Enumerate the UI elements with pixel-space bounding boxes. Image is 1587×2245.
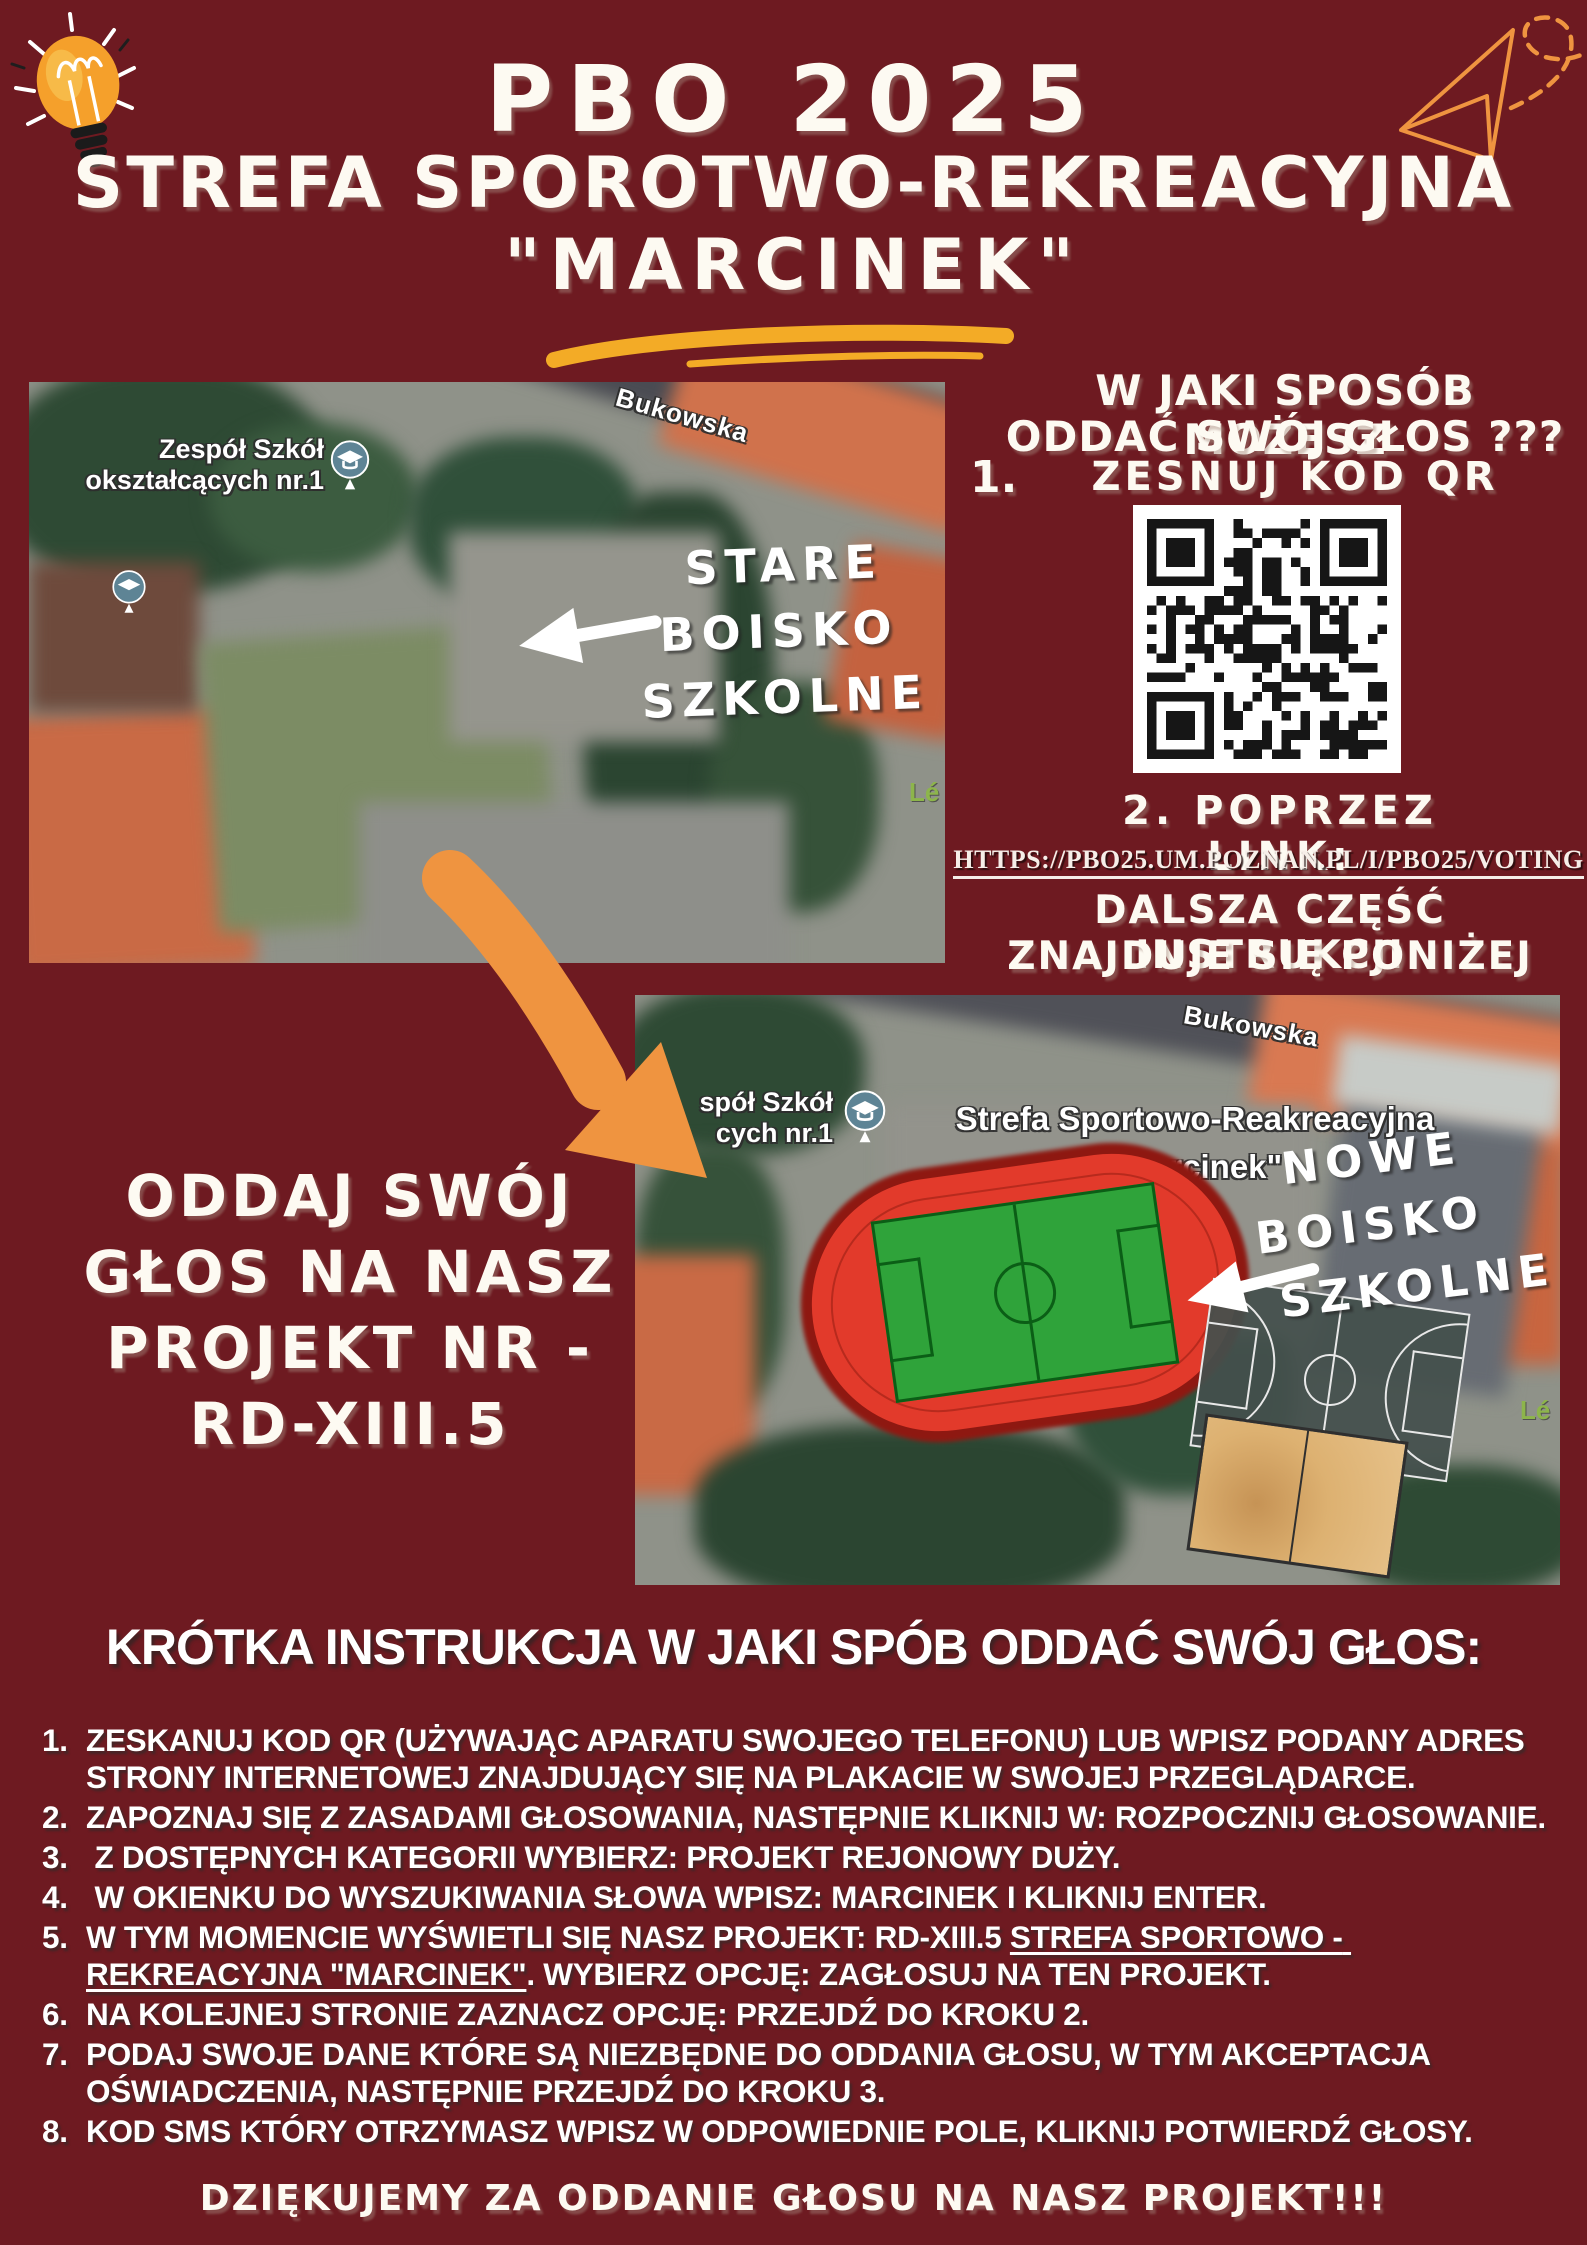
school-pin-icon: [329, 440, 371, 492]
instructions-heading: KRÓTKA INSTRUKCJA W JAKI SPÓB ODDAĆ SWÓJ…: [0, 1618, 1587, 1676]
satellite-map-old: Bukowska Zespół Szkół okształcących nr.1…: [29, 382, 945, 963]
step1-label: ZESNUJ KOD QR: [1090, 454, 1500, 500]
note-line2: ZNAJDUJE SIĘ PONIŻEJ: [980, 934, 1560, 979]
instruction-item: 4. W OKIENKU DO WYSZUKIWANIA SŁOWA WPISZ…: [42, 1879, 1574, 1916]
instruction-item: 3. Z DOSTĘPNYCH KATEGORII WYBIERZ: PROJE…: [42, 1839, 1574, 1876]
step1-number: 1.: [970, 452, 1017, 503]
instruction-item: 8.KOD SMS KTÓRY OTRZYMASZ WPISZ W ODPOWI…: [42, 2113, 1574, 2150]
underline-swoosh: [540, 318, 1020, 378]
instruction-item: 6.NA KOLEJNEJ STRONIE ZAZNACZ OPCJĘ: PRZ…: [42, 1996, 1574, 2033]
instruction-item: 7.PODAJ SWOJE DANE KTÓRE SĄ NIEZBĘDNE DO…: [42, 2036, 1574, 2110]
satellite-map-new: Bukowska spół Szkół cych nr.1 Strefa Spo…: [635, 995, 1560, 1585]
instruction-item: 1.ZESKANUJ KOD QR (UŻYWAJĄC APARATU SWOJ…: [42, 1722, 1574, 1796]
instruction-item: 5.W TYM MOMENCIE WYŚWIETLI SIĘ NASZ PROJ…: [42, 1919, 1574, 1993]
instruction-item: 2.ZAPOZNAJ SIĘ Z ZASADAMI GŁOSOWANIA, NA…: [42, 1799, 1574, 1836]
poster-subtitle: STREFA SPOROTWO-REKREACYJNA: [0, 142, 1587, 224]
poster: PBO 2025 STREFA SPOROTWO-REKREACYJNA "MA…: [0, 0, 1587, 2245]
school-label: Zespół Szkół okształcących nr.1: [59, 434, 324, 496]
school-pin-icon: [111, 570, 147, 615]
school-label-partial: spół Szkół cych nr.1: [683, 1087, 833, 1149]
instructions-list: 1.ZESKANUJ KOD QR (UŻYWAJĄC APARATU SWOJ…: [42, 1722, 1574, 2153]
sand-court: [1186, 1413, 1408, 1578]
poster-subtitle-quote: "MARCINEK": [0, 224, 1587, 306]
map-partial-label: Lé: [909, 777, 939, 808]
voting-link[interactable]: HTTPS://PBO25.UM.POZNAN.PL/I/PBO25/VOTIN…: [950, 845, 1587, 875]
qr-code: [1133, 505, 1401, 773]
thank-you-line: DZIĘKUJEMY ZA ODDANIE GŁOSU NA NASZ PROJ…: [0, 2178, 1587, 2219]
school-pin-icon: [843, 1090, 887, 1145]
poster-title: PBO 2025: [0, 46, 1587, 153]
cta-vote: ODDAJ SWÓJ GŁOS NA NASZ PROJEKT NR - RD-…: [40, 1158, 660, 1462]
map-partial-label: Lé: [1520, 1395, 1550, 1426]
